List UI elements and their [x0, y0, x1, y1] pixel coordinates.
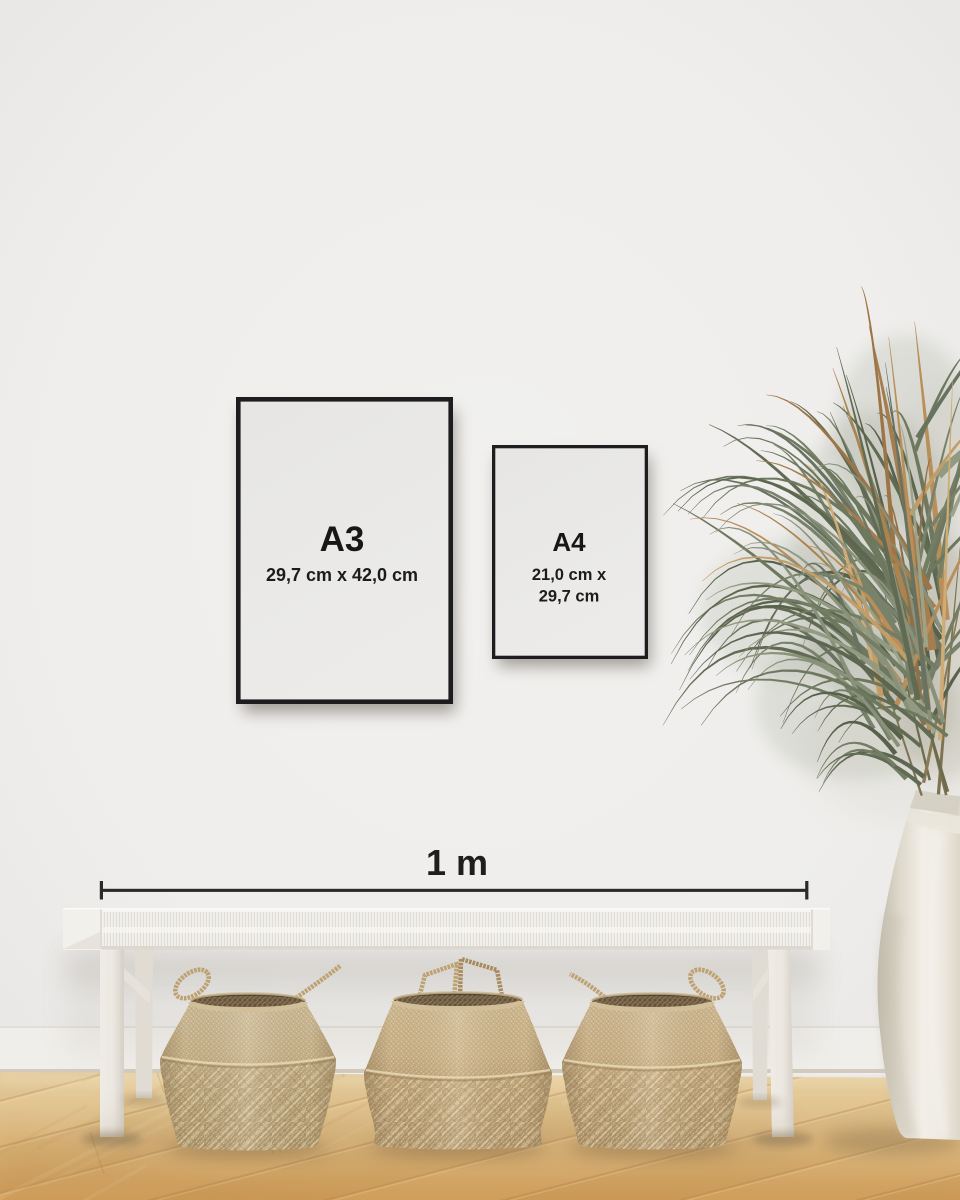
svg-text:21,0 cm x: 21,0 cm x: [532, 566, 607, 584]
svg-text:1 m: 1 m: [426, 842, 488, 883]
svg-text:29,7 cm: 29,7 cm: [539, 588, 600, 606]
svg-text:29,7 cm x 42,0 cm: 29,7 cm x 42,0 cm: [266, 565, 418, 585]
svg-text:A4: A4: [552, 527, 586, 557]
svg-text:A3: A3: [320, 520, 365, 559]
